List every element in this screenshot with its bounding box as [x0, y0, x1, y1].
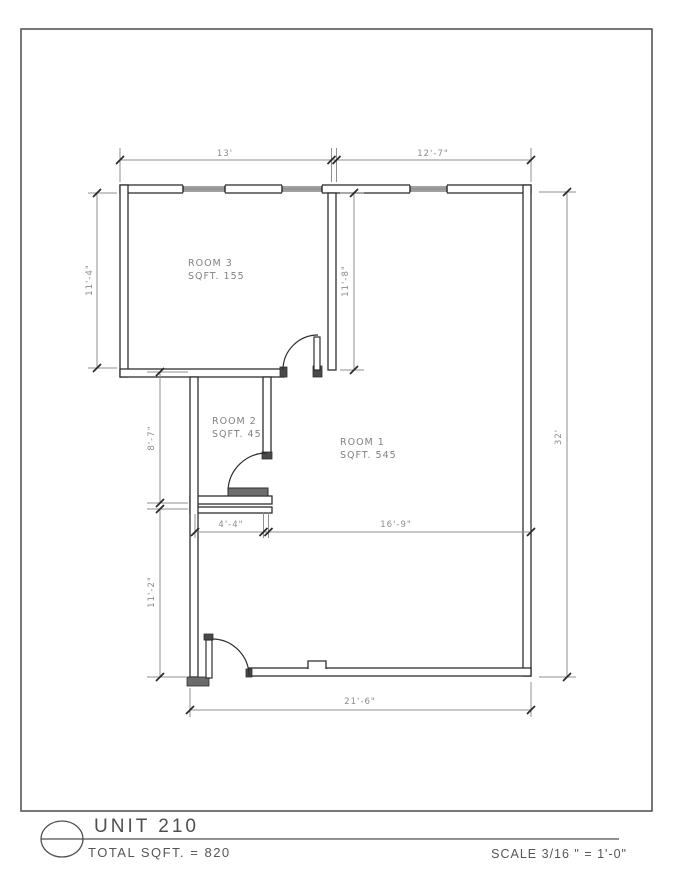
- total-sqft-label: TOTAL SQFT. = 820: [88, 845, 231, 860]
- dim-label-right-height: 32': [554, 429, 564, 445]
- window-3: [410, 184, 447, 194]
- wall-room2-bottom-lower: [190, 507, 272, 513]
- room-labels: ROOM 3 SQFT. 155 ROOM 2 SQFT. 45 ROOM 1 …: [188, 258, 397, 461]
- window-2: [282, 184, 322, 194]
- unit-title: UNIT 210: [94, 816, 199, 837]
- dimension-labels: 13' 12'-7" 11'-4" 11'-8" 8'-7" 11'-2" 32…: [85, 149, 564, 707]
- dim-label-top-left: 13': [217, 149, 233, 159]
- floor-plan-svg: 13' 12'-7" 11'-4" 11'-8" 8'-7" 11'-2" 32…: [0, 0, 674, 872]
- room2-sqft: SQFT. 45: [212, 429, 262, 440]
- walls: [120, 185, 531, 677]
- wall-room3-bottom: [120, 369, 284, 377]
- room1-sqft: SQFT. 545: [340, 450, 397, 461]
- room1-name: ROOM 1: [340, 437, 385, 448]
- door-entry-jamb-top: [204, 634, 213, 640]
- dim-label-room1-width: 16'-9": [380, 520, 412, 530]
- door-room2: [228, 452, 272, 496]
- room2-name: ROOM 2: [212, 416, 257, 427]
- dim-label-bottom-width: 21'-6": [344, 697, 376, 707]
- door-room2-leaf: [228, 488, 268, 496]
- wall-left-lower: [190, 377, 198, 677]
- drawing-sheet: 13' 12'-7" 11'-4" 11'-8" 8'-7" 11'-2" 32…: [0, 0, 674, 872]
- wall-bottom-notch: [308, 661, 326, 669]
- door-entry-swing-arc: [212, 639, 249, 676]
- door-room3-leaf: [314, 337, 320, 370]
- wall-room2-bottom: [190, 496, 272, 504]
- wall-right: [523, 185, 531, 676]
- door-room3: [280, 335, 322, 377]
- room3-name: ROOM 3: [188, 258, 233, 269]
- wall-left-upper: [120, 185, 128, 377]
- window-1: [183, 184, 225, 194]
- dim-label-top-right: 12'-7": [417, 149, 449, 159]
- wall-top: [120, 185, 531, 193]
- wall-bottom: [249, 668, 531, 676]
- door-room3-swing-arc: [283, 335, 318, 370]
- wall-room2-right: [263, 377, 271, 458]
- dim-label-room2-height: 8'-7": [147, 425, 157, 450]
- sheet-border: [21, 29, 652, 811]
- dim-label-lower-left-height: 11'-2": [147, 576, 157, 608]
- title-block: UNIT 210 TOTAL SQFT. = 820 SCALE 3/16 " …: [41, 816, 627, 861]
- dim-label-room3-height: 11'-4": [85, 264, 95, 296]
- wall-room3-room1: [328, 193, 336, 370]
- dim-label-room2-width: 4'-4": [218, 520, 243, 530]
- dim-label-room1-upper-height: 11'-8": [341, 265, 351, 297]
- door-entry-leaf: [206, 640, 212, 678]
- scale-label: SCALE 3/16 " = 1'-0": [491, 847, 627, 861]
- room3-sqft: SQFT. 155: [188, 271, 245, 282]
- door-room2-swing-arc: [228, 453, 267, 490]
